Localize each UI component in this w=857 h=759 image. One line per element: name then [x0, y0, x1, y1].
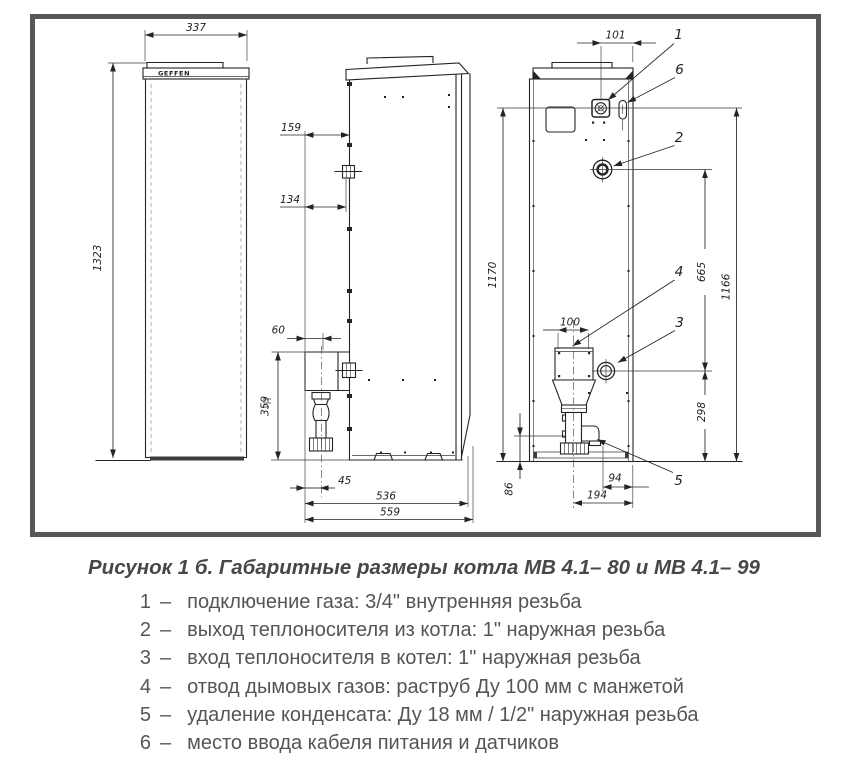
dim-label-536: 536: [376, 491, 396, 503]
dim-side-159: 159: [280, 122, 350, 135]
callout-6: 6: [628, 62, 684, 103]
page: GEFFEN 337 1323: [0, 0, 857, 759]
legend-item: 2 – выход теплоносителя из котла: 1" нар…: [137, 616, 857, 644]
legend-item: 6 – место ввода кабеля питания и датчико…: [137, 729, 857, 757]
dim-label-100: 100: [560, 317, 580, 329]
dim-label-159: 159: [281, 122, 301, 134]
technical-drawing: GEFFEN 337 1323: [0, 0, 857, 545]
legend-dash: –: [160, 729, 171, 757]
callout-label-4: 4: [675, 264, 684, 280]
dim-label-45: 45: [338, 475, 352, 487]
dim-side-45: 45: [290, 475, 352, 488]
dim-label-1323: 1323: [92, 245, 104, 272]
front-top-lip: [147, 63, 223, 69]
side-upper-fitting: [335, 166, 362, 213]
side-condensate-siphon: [310, 346, 333, 498]
legend-list: 1 – подключение газа: 3/4" внутренняя ре…: [0, 588, 857, 757]
callout-label-3: 3: [675, 315, 684, 331]
dim-label-359: 359: [260, 396, 272, 416]
legend-num: 4: [137, 673, 151, 701]
brand-logo: GEFFEN: [158, 70, 190, 78]
legend-text: удаление конденсата: Ду 18 мм / 1/2" нар…: [187, 701, 698, 729]
dim-rear-665: 665: [696, 170, 711, 372]
legend-item: 4 – отвод дымовых газов: раструб Ду 100 …: [137, 673, 857, 701]
legend-num: 6: [137, 729, 151, 757]
dim-label-194: 194: [587, 490, 607, 502]
legend-text: место ввода кабеля питания и датчиков: [187, 729, 559, 757]
callout-label-6: 6: [675, 62, 684, 78]
rear-view: 101 1170 1166 665 298 100: [487, 27, 742, 508]
figure-title: Рисунок 1 б. Габаритные размеры котла МВ…: [88, 556, 857, 580]
callout-label-2: 2: [675, 130, 684, 146]
legend-num: 2: [137, 616, 151, 644]
legend-num: 5: [137, 701, 151, 729]
dim-label-559: 559: [380, 507, 400, 519]
legend-item: 1 – подключение газа: 3/4" внутренняя ре…: [137, 588, 857, 616]
front-body: [146, 79, 247, 458]
front-view: GEFFEN 337 1323: [92, 22, 271, 461]
dim-label-101: 101: [605, 30, 625, 42]
dim-rear-1166: 1166: [721, 108, 737, 462]
dim-label-337: 337: [186, 22, 206, 34]
legend-num: 3: [137, 644, 151, 672]
figure-caption: Рисунок 1 б. Габаритные размеры котла МВ…: [0, 556, 857, 757]
side-view: 159 134 60 359 45 536: [260, 57, 474, 524]
dim-side-60: 60: [272, 325, 341, 351]
rear-opening: [546, 107, 575, 132]
legend-text: выход теплоносителя из котла: 1" наружна…: [187, 616, 665, 644]
callout-label-5: 5: [674, 473, 683, 489]
dim-rear-1170: 1170: [487, 108, 503, 462]
dim-rear-298: 298: [696, 371, 711, 462]
side-burner-box: [305, 352, 362, 391]
dim-front-width: 337: [145, 22, 247, 61]
legend-text: вход теплоносителя в котел: 1" наружная …: [187, 644, 641, 672]
legend-item: 5 – удаление конденсата: Ду 18 мм / 1/2"…: [137, 701, 857, 729]
legend-item: 3 – вход теплоносителя в котел: 1" наруж…: [137, 644, 857, 672]
dim-side-134: 134: [280, 194, 346, 207]
dim-side-559: 559: [305, 446, 473, 523]
legend-dash: –: [160, 588, 171, 616]
dim-label-134: 134: [280, 194, 300, 206]
legend-text: отвод дымовых газов: раструб Ду 100 мм с…: [187, 673, 684, 701]
dim-side-536: 536: [305, 456, 468, 507]
legend-dash: –: [160, 701, 171, 729]
front-base: [150, 457, 244, 461]
dim-front-height: 1323: [92, 63, 147, 458]
callout-label-1: 1: [674, 27, 683, 43]
legend-dash: –: [160, 644, 171, 672]
dim-label-665: 665: [696, 262, 708, 282]
dim-label-298: 298: [696, 402, 708, 422]
dim-label-1170: 1170: [487, 261, 499, 288]
dim-label-94: 94: [608, 473, 621, 485]
legend-num: 1: [137, 588, 151, 616]
legend-dash: –: [160, 673, 171, 701]
dim-label-1166: 1166: [721, 273, 733, 300]
rear-cap: [533, 68, 633, 79]
side-top-panel: [346, 63, 469, 80]
legend-text: подключение газа: 3/4" внутренняя резьба: [187, 588, 581, 616]
side-screw-dots: [368, 94, 454, 454]
dim-label-86: 86: [504, 482, 516, 496]
legend-dash: –: [160, 616, 171, 644]
dim-label-60: 60: [272, 325, 286, 337]
